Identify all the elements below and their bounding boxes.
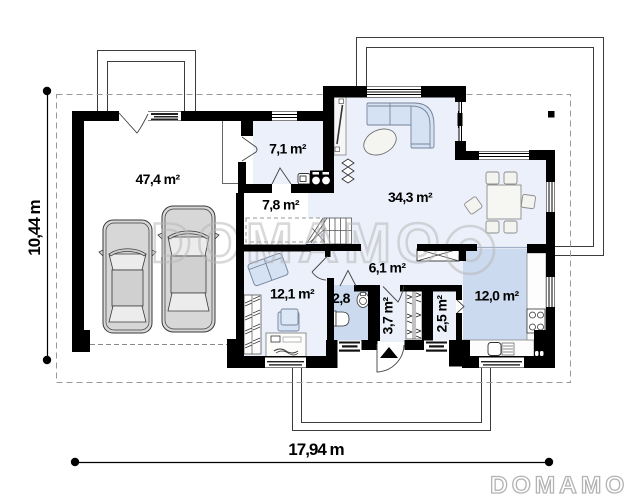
svg-text:7,1 m²: 7,1 m² <box>269 141 307 157</box>
svg-text:12,0 m²: 12,0 m² <box>474 288 519 304</box>
svg-text:6,1 m²: 6,1 m² <box>369 260 407 276</box>
svg-text:10,44 m: 10,44 m <box>25 199 44 255</box>
svg-text:3,7 m²: 3,7 m² <box>380 297 396 335</box>
svg-text:DOMAMO: DOMAMO <box>490 472 628 499</box>
svg-text:7,8 m²: 7,8 m² <box>262 197 300 213</box>
svg-text:2,8: 2,8 <box>332 290 350 306</box>
svg-text:47,4 m²: 47,4 m² <box>135 171 180 187</box>
svg-text:34,3 m²: 34,3 m² <box>388 189 433 205</box>
svg-text:2,5 m²: 2,5 m² <box>434 295 450 333</box>
svg-text:12,1 m²: 12,1 m² <box>270 286 315 302</box>
svg-text:17,94 m: 17,94 m <box>288 440 344 459</box>
